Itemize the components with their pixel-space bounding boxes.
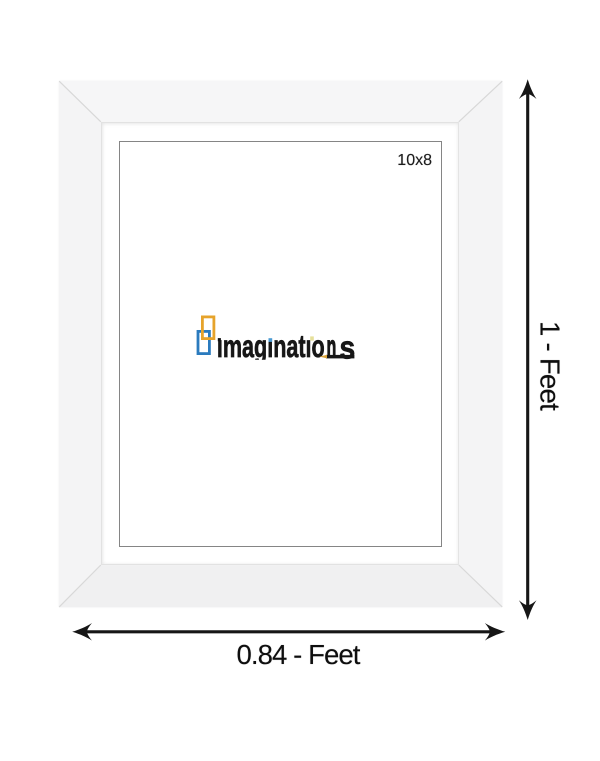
svg-text:n: n bbox=[327, 329, 337, 364]
svg-text:s: s bbox=[340, 330, 356, 366]
svg-text:ımagınatıo: ımagınatıo bbox=[217, 329, 325, 364]
